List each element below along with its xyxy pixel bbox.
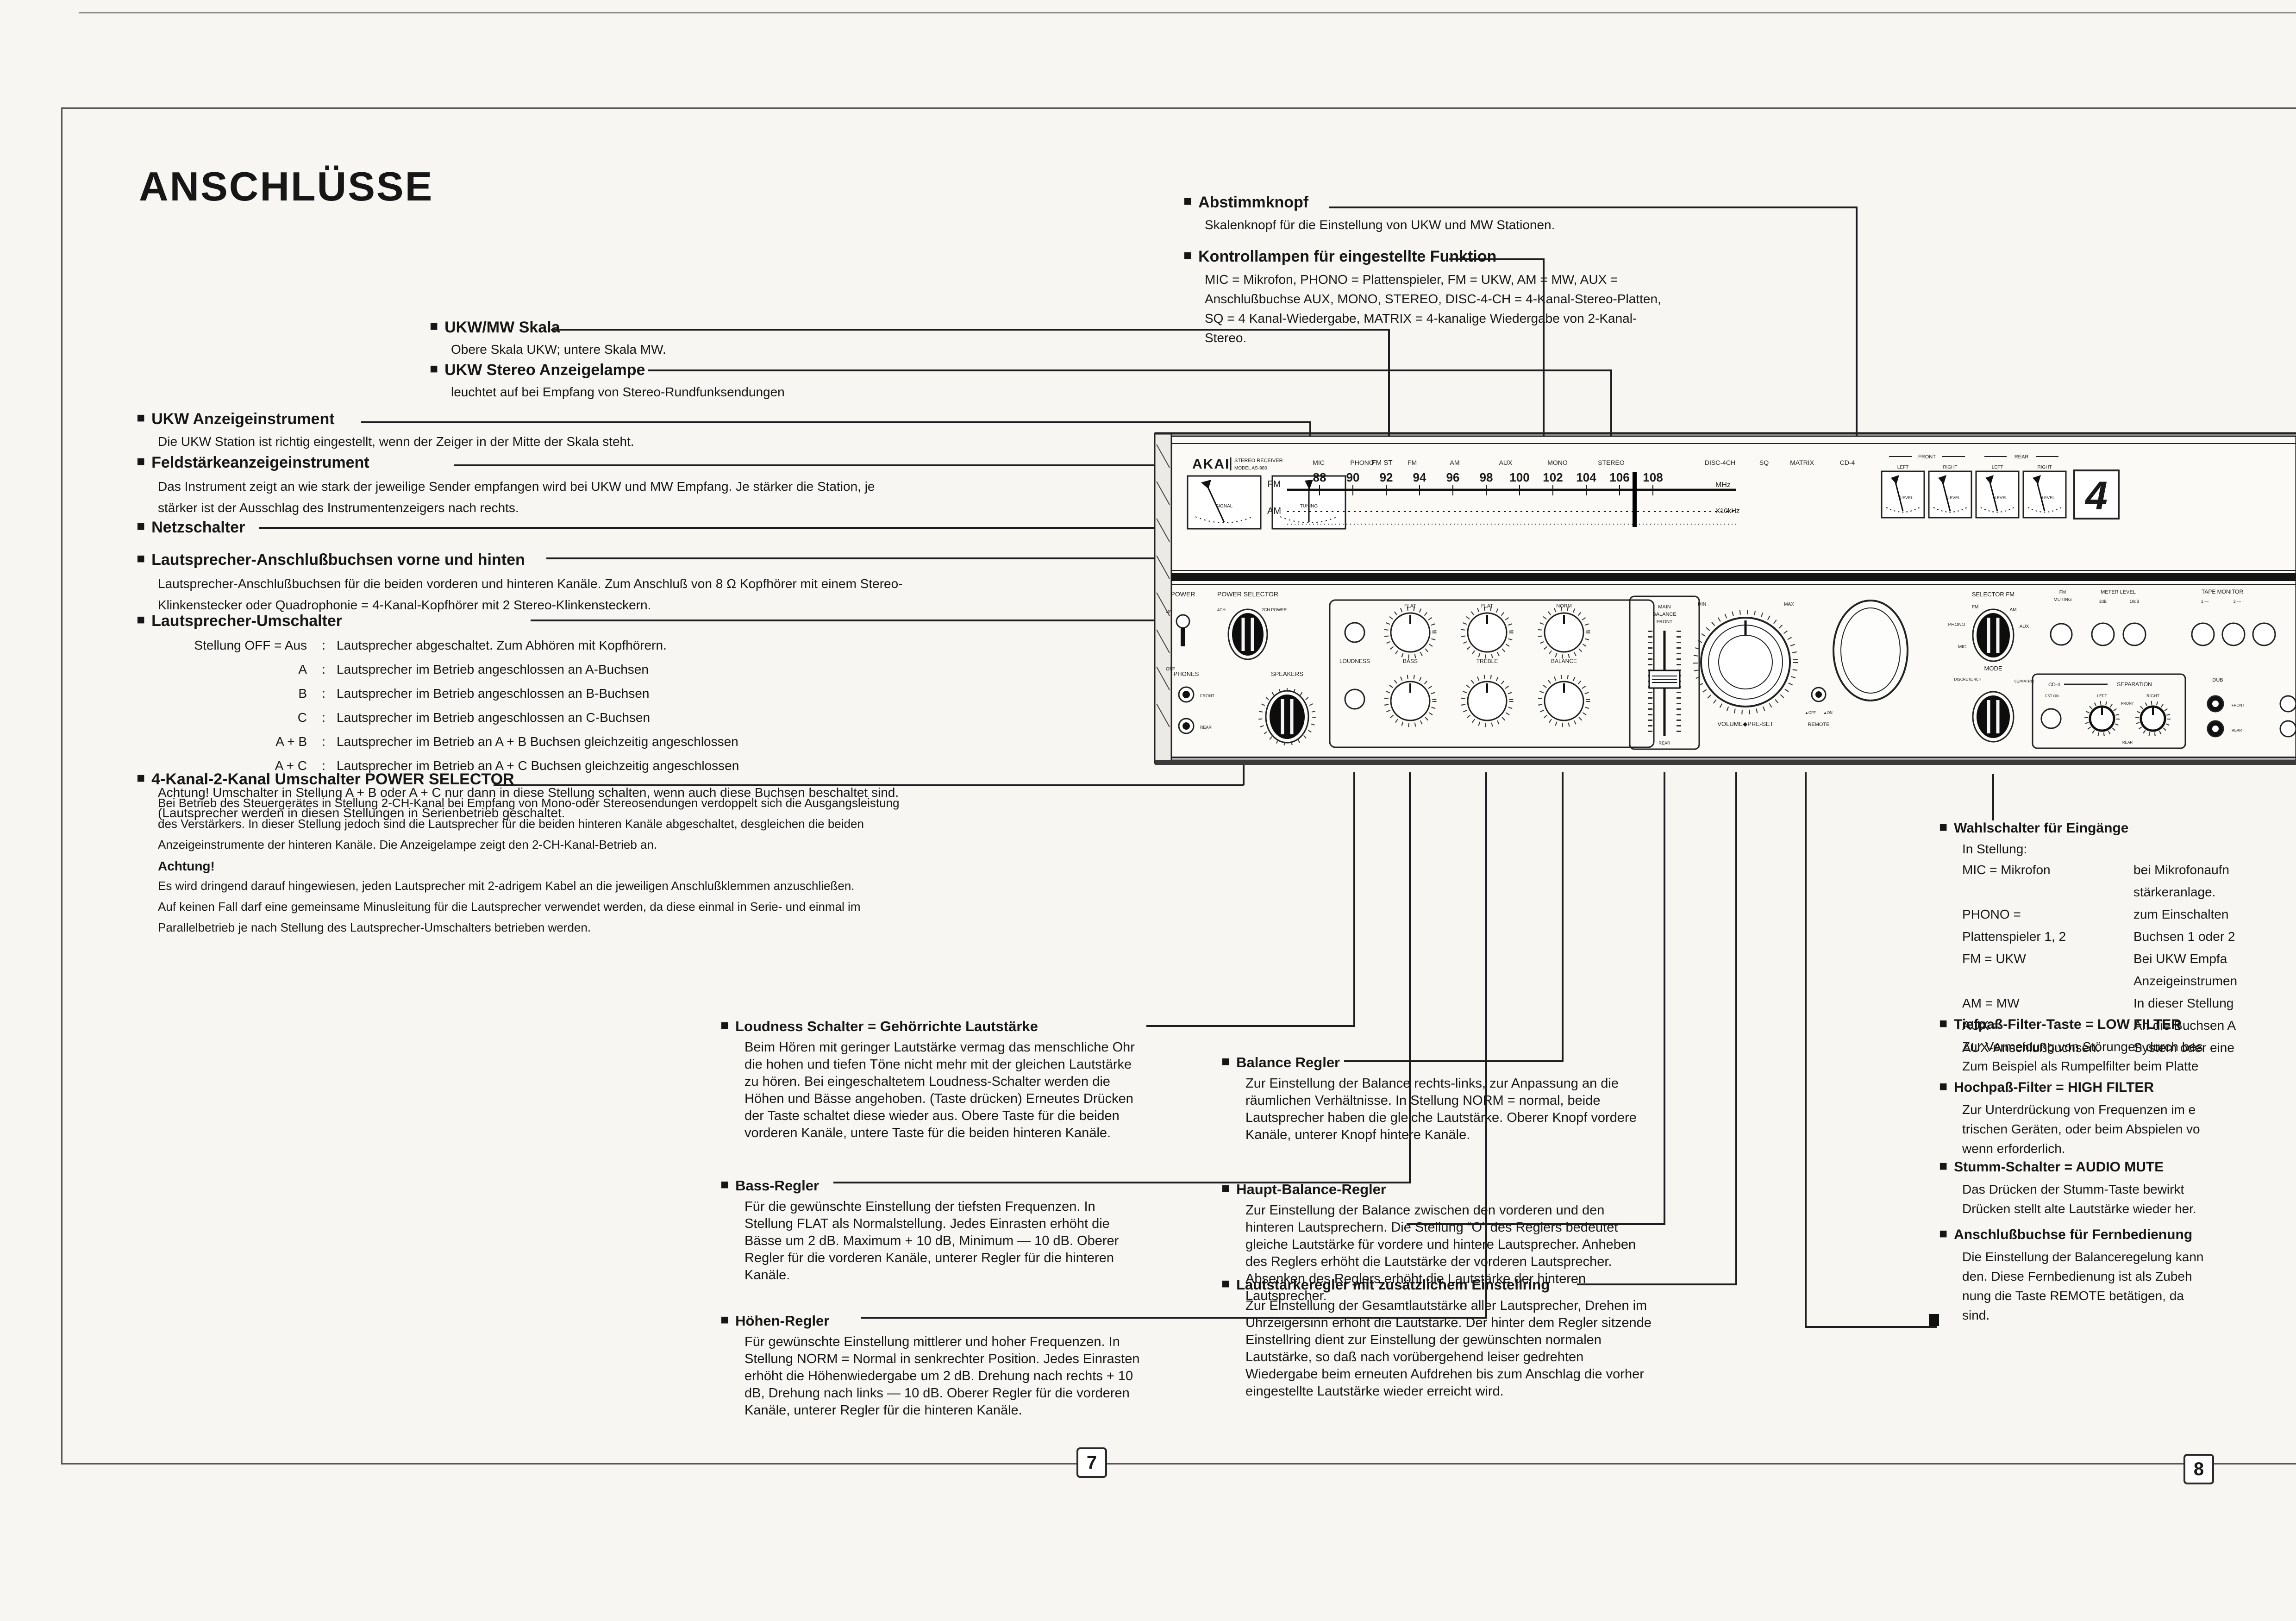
annotation-body: Obere Skala UKW; untere Skala MW. [451,341,939,358]
tape-monitor-label: TAPE MONITOR [2202,588,2244,595]
edge-jack [2280,696,2296,712]
svg-text:AM: AM [2010,607,2017,613]
bullet-icon [1929,1314,1939,1326]
volume-label: VOLUME◆PRE-SET [1717,720,1773,727]
mode-discrete-label: DISCRETE 4CH [1954,677,1982,682]
annotation-body: Für gewünschte Einstellung mittlerer und… [744,1333,1145,1419]
wood-side [1155,433,1171,763]
leader-line [1146,1025,1355,1027]
fm-muting-button [2051,624,2072,645]
svg-text:RIGHT: RIGHT [2146,694,2160,698]
svg-text:96: 96 [1446,470,1460,484]
svg-text:▲ON: ▲ON [1823,711,1833,715]
svg-text:REAR: REAR [1200,725,1212,730]
annotation-subheading: Achtung! [158,859,947,874]
bullet-icon: ■ [137,551,145,567]
svg-text:REAR: REAR [1658,741,1670,745]
dial-mhz-label: MHz [1715,481,1731,489]
manual-page: ANSCHLÜSSE ■ Abstimmknopf Skalenknopf fü… [0,0,2296,1621]
annotation-body: Beim Hören mit geringer Lautstärke verma… [744,1039,1145,1142]
bullet-icon: ■ [720,1312,729,1328]
svg-text:94: 94 [1413,470,1426,484]
cd4-fst-on-label: FST ON [2045,694,2058,698]
svg-text:92: 92 [1380,470,1393,484]
bullet-icon: ■ [137,612,145,628]
bullet-icon: ■ [1939,820,1947,835]
leader-line [1805,1326,1937,1328]
svg-text:104: 104 [1576,470,1596,484]
leader-line [494,784,1244,786]
cabinet-bottom-edge [1155,760,2296,765]
scan-edge-line [79,12,2296,13]
svg-text:STEREO: STEREO [1598,459,1625,466]
tape-monitor-2: 2 — [2233,599,2241,604]
leader-line [551,329,1389,331]
annotation-feldstaerke: ■ Feldstärkeanzeigeinstrument Das Instru… [137,454,924,519]
switch-position: C [158,708,311,727]
svg-text:FRONT: FRONT [1200,694,1214,698]
annotation-ls-buchsen: ■ Lautsprecher-Anschlußbuchsen vorne und… [137,551,993,616]
switch-description: Lautsprecher im Betrieb angeschlossen an… [337,660,1017,679]
leader-line [833,1182,1410,1183]
svg-text:CD-4: CD-4 [1840,459,1855,466]
switch-description: Lautsprecher im Betrieb angeschlossen an… [337,708,1017,727]
fm-muting-label: FM [2059,590,2066,595]
svg-text:AM: AM [1450,459,1460,466]
svg-text:FM: FM [1972,605,1978,610]
svg-text:REAR: REAR [2232,728,2242,732]
annotation-ukw-mw-skala: ■ UKW/MW Skala Obere Skala UKW; untere S… [430,319,939,358]
leader-line [259,527,1184,529]
svg-text:MIC: MIC [1313,459,1325,466]
svg-text:PHONO: PHONO [1948,622,1965,627]
svg-text:98: 98 [1480,470,1493,484]
bullet-icon: ■ [137,519,145,534]
bullet-icon: ■ [430,361,438,377]
meter-level-2db-button [2092,623,2114,645]
annotation-body: MIC = Mikrofon, PHONO = Plattenspieler, … [1205,270,1668,348]
phones-label: PHONES [1174,670,1199,677]
tuning-meter: TUNING [1272,476,1345,529]
leader-line [1329,207,1857,208]
cd4-on-button [2041,709,2061,728]
annotation-heading: Feldstärkeanzeigeinstrument [151,454,369,471]
switch-description: Lautsprecher im Betrieb angeschlossen an… [337,684,1017,703]
svg-text:RIGHT: RIGHT [2037,465,2052,470]
power-selector-2ch: 2CH POWER [1262,607,1287,612]
annotation-body: Es wird dringend darauf hingewiesen, jed… [158,876,866,938]
annotation-heading: Lautsprecher-Anschlußbuchsen vorne und h… [151,551,525,569]
bullet-icon: ■ [1183,194,1192,209]
bullet-icon: ■ [137,410,145,426]
selector-fm-knob [1973,609,2014,661]
annotation-ukw-stereo-lampe: ■ UKW Stereo Anzeigelampe leuchtet auf b… [430,361,1032,401]
dial-x10khz-label: X10kHz [1715,507,1740,515]
annotation-heading: UKW Stereo Anzeigelampe [444,361,645,379]
fm-muting-label2: MUTING [2053,597,2072,602]
annotation-loudness: ■ Loudness Schalter = Gehörrichte Lautst… [720,1018,1160,1142]
leader-line [648,369,1611,371]
power-on-label: ON [1166,609,1173,614]
svg-text:FRONT: FRONT [1657,620,1672,625]
svg-text:MATRIX: MATRIX [1790,459,1814,466]
fm-stereo-indicator: FM ST [1372,459,1393,467]
leader-line [1562,772,1564,1062]
leader-line [1449,258,1545,260]
annotation-body: Das Drücken der Stumm-Taste bewirkt Drüc… [1962,1180,2296,1219]
leader-line [1409,772,1411,1183]
annotation-balance: ■ Balance Regler Zur Einstellung der Bal… [1221,1054,1666,1144]
leader-line [1992,774,1994,820]
bullet-icon: ■ [1939,1016,1947,1032]
svg-text:FRONT: FRONT [2121,701,2134,706]
panel-divider-band [1171,573,2296,581]
annotation-heading: Lautstärkeregler mit zusätzlichem Einste… [1236,1276,1550,1294]
bullet-icon: ■ [1939,1158,1947,1174]
svg-text:BALANCE: BALANCE [1652,612,1676,617]
annotation-heading: 4-Kanal-2-Kanal Umschalter POWER SELECTO… [151,770,514,788]
leader-line [1577,1283,1736,1285]
bullet-icon: ■ [1183,248,1192,263]
mode-sq-label: SQ/MATRIX [2014,679,2034,683]
loudness-rear-button [1345,689,1364,709]
annotation-ukw-anzeigeinstrument: ■ UKW Anzeigeinstrument Die UKW Station … [137,410,1155,451]
leader-line [1353,772,1355,1027]
power-selector-label: POWER SELECTOR [1217,590,1278,598]
leader-line [1805,772,1807,1328]
annotation-bass: ■ Bass-Regler Für die gewünschte Einstel… [720,1177,1160,1284]
annotation-tiefpass: ■ Tiefpaß-Filter-Taste = LOW FILTER Zur … [1939,1016,2296,1076]
meter-level-10db: 10dB [2129,599,2139,604]
annotation-heading: Abstimmknopf [1198,194,1308,211]
svg-text:MIN: MIN [1698,602,1706,607]
leader-line [1407,1223,1664,1225]
annotation-heading: Wahlschalter für Eingänge [1954,820,2128,837]
annotation-body: Das Instrument zeigt an wie stark der je… [158,476,917,519]
svg-text:BALANCE: BALANCE [1551,658,1577,664]
speakers-label: SPEAKERS [1271,670,1303,677]
page-number-right: 8 [2183,1454,2214,1484]
annotation-heading: Bass-Regler [735,1177,819,1195]
annotation-heading: Tiefpaß-Filter-Taste = LOW FILTER [1954,1016,2181,1033]
brand-type: STEREO RECEIVER [1234,458,1283,463]
mode-knob [1973,692,2014,742]
bullet-icon: ■ [720,1018,729,1033]
bullet-icon: ■ [720,1177,729,1193]
svg-text:106: 106 [1609,470,1629,484]
svg-text:102: 102 [1543,470,1563,484]
leader-line [1344,1060,1563,1062]
svg-text:DISC-4CH: DISC-4CH [1705,459,1735,466]
loudness-front-button [1345,623,1364,642]
annotation-body: Lautsprecher-Anschlußbuchsen für die bei… [158,573,973,616]
svg-text:SEPARATION: SEPARATION [2117,681,2152,688]
svg-text:NORM: NORM [1556,603,1572,609]
annotation-body: Zur Einstellung der Gesamtlautstärke all… [1245,1297,1653,1400]
svg-text:MONO: MONO [1547,459,1568,466]
brand-logo: AKAI [1192,457,1230,472]
annotation-body: Skalenknopf für die Einstellung von UKW … [1205,216,1670,234]
tape-monitor-1-button [2192,623,2214,645]
tape-monitor-3-button [2253,623,2275,645]
annotation-body: Die Einstellung der Balanceregelung kann… [1962,1247,2296,1325]
annotation-body: Für die gewünschte Einstellung der tiefs… [744,1198,1145,1284]
annotation-intro: In Stellung: [1962,840,2296,858]
bullet-icon: ■ [1939,1079,1947,1095]
tape-monitor-2-button [2222,623,2245,645]
svg-text:AUX: AUX [2020,624,2029,629]
signal-meter: SIGNAL [1188,476,1261,529]
svg-text:CD-4: CD-4 [2048,682,2060,688]
bullet-icon: ■ [1221,1276,1230,1292]
leader-line [454,464,1225,466]
bullet-icon: ■ [1939,1226,1947,1242]
tuning-knob [1833,601,1908,701]
svg-text:LEFT: LEFT [1992,465,2003,470]
leader-line [1485,772,1487,1319]
annotation-heading: Loudness Schalter = Gehörrichte Lautstär… [735,1018,1038,1035]
annotation-heading: Balance Regler [1236,1054,1340,1071]
switch-description: Lautsprecher im Betrieb an A + B Buchsen… [337,732,1017,751]
bullet-icon: ■ [1221,1054,1230,1070]
svg-text:LEVEL: LEVEL [1900,495,1913,500]
annotation-heading: Anschlußbuchse für Fernbedienung [1954,1226,2192,1244]
leader-line [546,557,1185,559]
leader-line [861,1317,1486,1319]
receiver-illustration: AKAI STEREO RECEIVER MODEL AS-980 SIGNAL… [1148,417,2296,769]
meter-level-label: METER LEVEL [2101,589,2136,595]
switch-position: A [158,660,311,679]
svg-text:100: 100 [1509,470,1529,484]
meter-level-2db: 2dB [2099,599,2107,604]
brand-model: MODEL AS-980 [1234,466,1267,471]
switch-position: Stellung OFF = Aus [158,636,311,655]
svg-text:REAR: REAR [2014,454,2029,460]
bullet-icon: ■ [430,319,438,334]
edge-jack [2280,721,2296,737]
svg-text:REMOTE: REMOTE [1808,722,1829,727]
svg-text:LEVEL: LEVEL [2042,495,2055,500]
annotation-heading: Lautsprecher-Umschalter [151,612,342,630]
svg-text:DUB: DUB [2212,677,2223,683]
annotation-heading: Kontrollampen für eingestellte Funktion [1198,248,1496,265]
switch-description: Lautsprecher abgeschaltet. Zum Abhören m… [337,636,1017,655]
svg-text:LEVEL: LEVEL [1995,495,2008,500]
dial-pointer [1633,472,1637,527]
annotation-heading: Netzschalter [151,519,245,536]
svg-text:LEFT: LEFT [1897,465,1908,470]
svg-text:LOUDNESS: LOUDNESS [1339,658,1370,664]
svg-text:108: 108 [1643,470,1663,484]
bullet-icon: ■ [137,454,145,469]
svg-text:MIC: MIC [1958,645,1966,650]
annotation-kontrollampen: ■ Kontrollampen für eingestellte Funktio… [1183,248,1674,348]
annotation-body: Die UKW Station ist richtig eingestellt,… [158,432,1155,451]
annotation-heading: UKW/MW Skala [444,319,560,336]
annotation-hoehen: ■ Höhen-Regler Für gewünschte Einstellun… [720,1312,1160,1419]
annotation-hochpass: ■ Hochpaß-Filter = HIGH FILTER Zur Unter… [1939,1079,2296,1158]
switch-position: A + B [158,732,311,751]
svg-text:LEVEL: LEVEL [1947,495,1960,500]
annotation-heading: Höhen-Regler [735,1312,829,1330]
svg-text:SIGNAL: SIGNAL [1216,504,1233,509]
svg-text:PHONO: PHONO [1350,459,1374,466]
svg-text:MAIN: MAIN [1658,604,1671,610]
leader-line [1664,772,1665,1225]
annotation-abstimmknopf: ■ Abstimmknopf Skalenknopf für die Einst… [1183,194,1670,234]
tape-monitor-1: 1 — [2201,599,2209,604]
bullet-icon: ■ [137,770,145,786]
svg-text:MAX: MAX [1784,602,1794,607]
power-selector-4ch: 4CH [1217,607,1226,612]
annotation-heading: Stumm-Schalter = AUDIO MUTE [1954,1158,2164,1176]
svg-text:FM: FM [1408,459,1417,466]
power-selector-knob [1228,609,1267,659]
page-number-left: 7 [1076,1447,1107,1478]
annotation-body: Zur Unterdrückung von Frequenzen im e tr… [1962,1100,2296,1158]
quad-badge: 4 [2074,470,2119,519]
leader-line [1735,772,1737,1285]
page-title: ANSCHLÜSSE [139,163,433,210]
dial-am-label: AM [1267,506,1281,516]
svg-text:LEFT: LEFT [2097,694,2108,698]
mode-label: MODE [1984,665,2002,672]
svg-text:▲OFF: ▲OFF [1805,711,1816,715]
svg-text:88: 88 [1313,470,1326,484]
svg-text:4: 4 [2084,474,2108,518]
svg-text:SQ: SQ [1759,459,1769,466]
annotation-power-selector: ■ 4-Kanal-2-Kanal Umschalter POWER SELEC… [137,770,947,938]
annotation-stumm: ■ Stumm-Schalter = AUDIO MUTE Das Drücke… [1939,1158,2296,1219]
selector-fm-label: SELECTOR FM [1972,591,2014,598]
switch-position: B [158,684,311,703]
svg-text:RIGHT: RIGHT [1943,465,1957,470]
annotation-lautstaerke: ■ Lautstärkeregler mit zusätzlichem Eins… [1221,1276,1675,1400]
annotation-body: Zur Einstellung der Balance rechts-links… [1245,1075,1653,1144]
svg-text:AUX: AUX [1499,459,1513,466]
annotation-heading: Hochpaß-Filter = HIGH FILTER [1954,1079,2154,1096]
annotation-body: leuchtet auf bei Empfang von Stereo-Rund… [451,383,1032,401]
annotation-fernbedienung: ■ Anschlußbuchse für Fernbedienung Die E… [1939,1226,2296,1325]
power-label: POWER [1171,590,1195,598]
meter-level-10db-button [2123,623,2146,645]
annotation-heading: UKW Anzeigeinstrument [151,410,334,428]
svg-text:TREBLE: TREBLE [1476,658,1498,664]
svg-text:FRONT: FRONT [1918,454,1936,460]
dial-fm-label: FM [1268,479,1281,489]
annotation-body: Zur Vermeidung von Störungen durch bes Z… [1962,1037,2296,1076]
speaker-switch-table: Stellung OFF = Aus : Lautsprecher abgesc… [158,636,1039,775]
svg-text:REAR: REAR [2122,740,2133,745]
svg-text:90: 90 [1346,470,1360,484]
svg-text:FRONT: FRONT [2232,703,2245,707]
svg-text:TUNING: TUNING [1300,504,1318,509]
svg-text:BASS: BASS [1403,658,1418,664]
annotation-body: Bei Betrieb des Steuergerätes in Stellun… [158,793,908,855]
